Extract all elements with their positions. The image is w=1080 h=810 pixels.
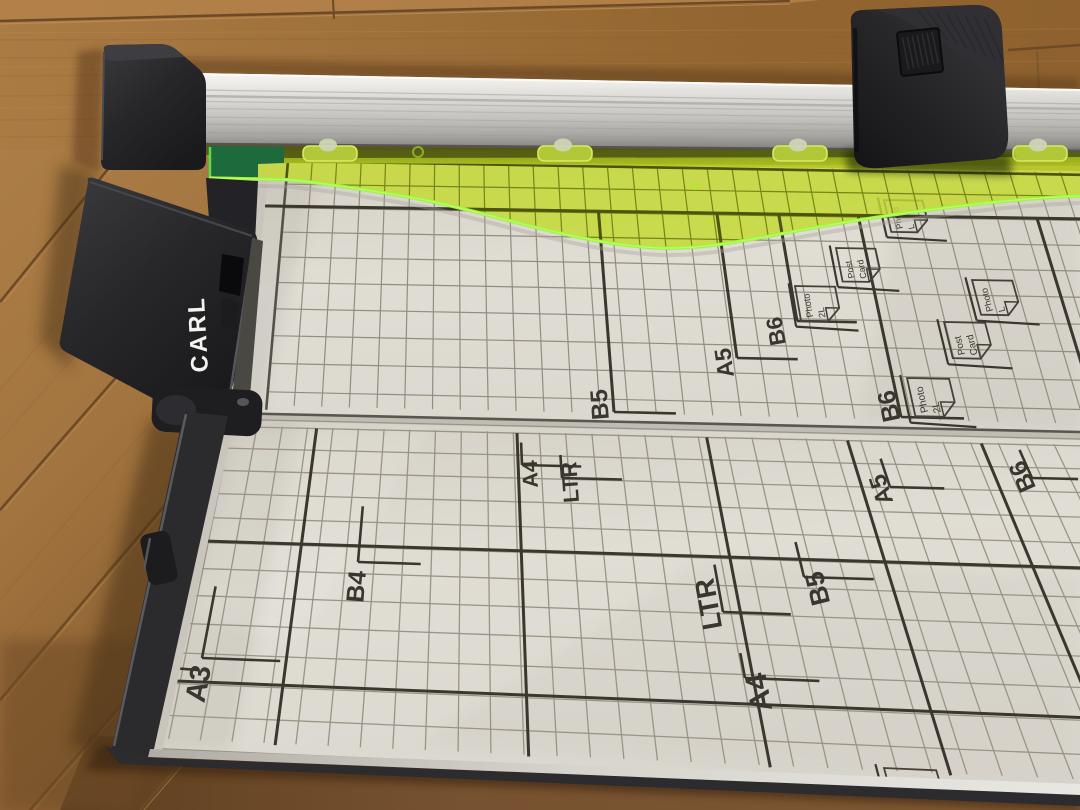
svg-text:LTR: LTR [556,461,584,504]
svg-text:B5: B5 [586,388,615,421]
svg-text:B6: B6 [761,315,790,347]
svg-text:CARL: CARL [183,295,214,373]
svg-text:A5: A5 [709,346,739,379]
svg-text:A4: A4 [518,460,543,488]
svg-text:2L: 2L [816,307,828,319]
svg-text:B4: B4 [341,569,372,603]
